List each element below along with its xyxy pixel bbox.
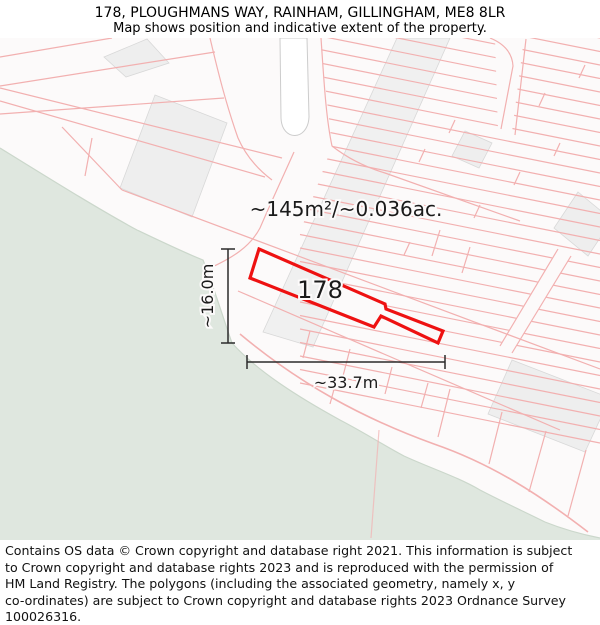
area-label: ~145m²/~0.036ac.	[250, 197, 443, 221]
copyright-notice: Contains OS data © Crown copyright and d…	[0, 540, 600, 625]
copyright-line: HM Land Registry. The polygons (includin…	[5, 576, 600, 593]
width-dimension-label: ~33.7m	[314, 373, 379, 392]
page-title: 178, PLOUGHMANS WAY, RAINHAM, GILLINGHAM…	[0, 5, 600, 21]
plot-number-label: 178	[297, 276, 343, 304]
page-header: 178, PLOUGHMANS WAY, RAINHAM, GILLINGHAM…	[0, 0, 600, 38]
copyright-line: to Crown copyright and database rights 2…	[5, 560, 600, 577]
page-subtitle: Map shows position and indicative extent…	[0, 21, 600, 36]
copyright-line: 100026316.	[5, 609, 600, 625]
copyright-line: Contains OS data © Crown copyright and d…	[5, 543, 600, 560]
road	[280, 38, 309, 136]
height-dimension-label: ~16.0m	[198, 264, 217, 329]
copyright-line: co-ordinates) are subject to Crown copyr…	[5, 593, 600, 610]
property-map-page: 178, PLOUGHMANS WAY, RAINHAM, GILLINGHAM…	[0, 0, 600, 625]
map-canvas: ~145m²/~0.036ac. 178 ~33.7m ~16.0m	[0, 38, 600, 540]
